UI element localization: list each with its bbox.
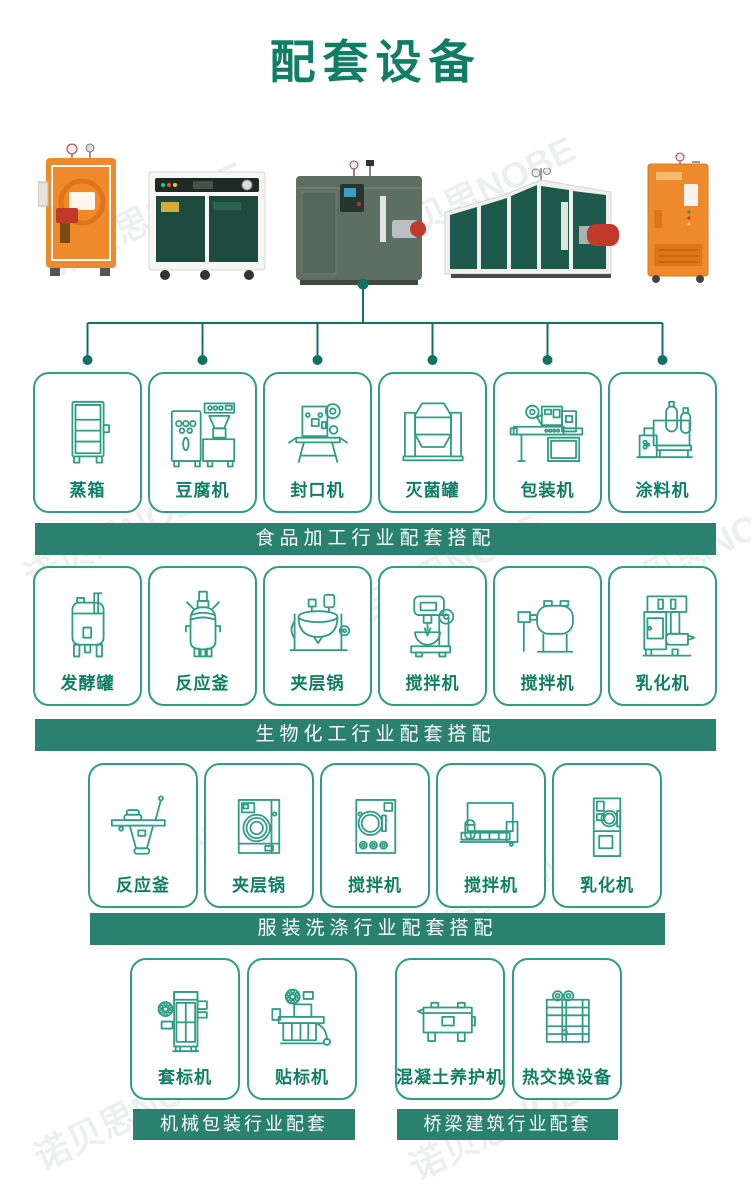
tofu-machine-icon xyxy=(164,386,242,480)
reactor-kettle-icon xyxy=(164,579,242,673)
equipment-label: 夹层锅 xyxy=(291,673,345,695)
equipment-label: 封口机 xyxy=(291,480,345,502)
equipment-card: 豆腐机 xyxy=(148,372,257,513)
equipment-card: 反应釜 xyxy=(148,566,257,706)
flatwork-ironer-icon xyxy=(452,781,530,875)
equipment-label: 涂料机 xyxy=(636,480,690,502)
equipment-card: 夹层锅 xyxy=(263,566,372,706)
equipment-label: 蒸箱 xyxy=(70,480,106,502)
industry-banner: 服装洗涤行业配套搭配 xyxy=(90,913,665,945)
sterilizer-tank-icon xyxy=(394,386,472,480)
equipment-group: 蒸箱豆腐机封口机灭菌罐包装机涂料机食品加工行业配套搭配 xyxy=(33,372,717,513)
equipment-card: 乳化机 xyxy=(608,566,717,706)
equipment-label: 搅拌机 xyxy=(464,875,518,897)
equipment-card: 混凝土养护机 xyxy=(395,958,505,1100)
equipment-label: 贴标机 xyxy=(275,1067,329,1089)
equipment-label: 发酵罐 xyxy=(61,673,115,695)
industry-banner: 食品加工行业配套搭配 xyxy=(35,523,716,555)
heat-exchanger-icon xyxy=(528,973,606,1067)
equipment-card: 套标机 xyxy=(130,958,240,1100)
sealing-machine-icon xyxy=(279,386,357,480)
equipment-card: 涂料机 xyxy=(608,372,717,513)
product-photo-large-green-boiler xyxy=(441,168,623,284)
coating-machine-icon xyxy=(624,386,702,480)
jacketed-pot-icon xyxy=(279,579,357,673)
industry-banner: 桥梁建筑行业配套 xyxy=(397,1109,618,1140)
equipment-card: 搅拌机 xyxy=(436,763,546,908)
page-title: 配套设备 xyxy=(0,26,751,92)
equipment-card: 搅拌机 xyxy=(320,763,430,908)
industry-banner: 生物化工行业配套搭配 xyxy=(35,719,716,751)
front-washer-icon xyxy=(220,781,298,875)
equipment-card: 发酵罐 xyxy=(33,566,142,706)
equipment-card: 反应釜 xyxy=(88,763,198,908)
equipment-card: 搅拌机 xyxy=(493,566,602,706)
product-photo-green-cube-generator xyxy=(292,158,426,286)
industry-banner: 机械包装行业配套 xyxy=(133,1109,355,1140)
equipment-label: 乳化机 xyxy=(580,875,634,897)
equipment-label: 混凝土养护机 xyxy=(396,1067,504,1089)
front-washer-2-icon xyxy=(336,781,414,875)
equipment-card: 灭菌罐 xyxy=(378,372,487,513)
emulsifier-icon xyxy=(624,579,702,673)
equipment-label: 反应釜 xyxy=(176,673,230,695)
equipment-label: 热交换设备 xyxy=(522,1067,612,1089)
equipment-card: 搅拌机 xyxy=(378,566,487,706)
equipment-label: 反应釜 xyxy=(116,875,170,897)
equipment-group: 套标机贴标机机械包装行业配套 xyxy=(130,958,357,1100)
equipment-label: 套标机 xyxy=(158,1067,212,1089)
equipment-group: 反应釜夹层锅搅拌机搅拌机乳化机服装洗涤行业配套搭配 xyxy=(88,763,662,908)
equipment-card: 贴标机 xyxy=(247,958,357,1100)
equipment-label: 搅拌机 xyxy=(521,673,575,695)
concrete-curing-box-icon xyxy=(411,973,489,1067)
equipment-card: 封口机 xyxy=(263,372,372,513)
labeling-machine-icon xyxy=(263,973,341,1067)
equipment-label: 包装机 xyxy=(521,480,575,502)
steam-cabinet-icon xyxy=(49,386,127,480)
product-photo-orange-vertical-generator xyxy=(38,142,124,282)
stand-mixer-icon xyxy=(394,579,472,673)
equipment-label: 豆腐机 xyxy=(176,480,230,502)
equipment-group: 混凝土养护机热交换设备桥梁建筑行业配套 xyxy=(395,958,622,1100)
fermenter-tank-icon xyxy=(49,579,127,673)
packaging-machine-icon xyxy=(509,386,587,480)
equipment-label: 乳化机 xyxy=(636,673,690,695)
equipment-label: 灭菌罐 xyxy=(406,480,460,502)
equipment-card: 包装机 xyxy=(493,372,602,513)
equipment-card: 夹层锅 xyxy=(204,763,314,908)
sleeve-labeler-icon xyxy=(146,973,224,1067)
equipment-label: 搅拌机 xyxy=(348,875,402,897)
equipment-label: 夹层锅 xyxy=(232,875,286,897)
supporting-equipment-page: 诺贝思NOBE 诺贝思NOBE 诺贝思NOBE 诺贝思NOBE 诺贝思NOBE … xyxy=(0,0,751,1187)
dryer-icon xyxy=(568,781,646,875)
ironing-table-icon xyxy=(104,781,182,875)
equipment-group: 发酵罐反应釜夹层锅搅拌机搅拌机乳化机生物化工行业配套搭配 xyxy=(33,566,717,706)
product-photo-orange-cabinet-generator xyxy=(642,152,716,284)
equipment-card: 热交换设备 xyxy=(512,958,622,1100)
equipment-card: 蒸箱 xyxy=(33,372,142,513)
equipment-card: 乳化机 xyxy=(552,763,662,908)
connector-tree xyxy=(0,276,751,372)
product-photo-green-cabinet-generator xyxy=(147,162,269,286)
equipment-label: 搅拌机 xyxy=(406,673,460,695)
drum-mixer-icon xyxy=(509,579,587,673)
